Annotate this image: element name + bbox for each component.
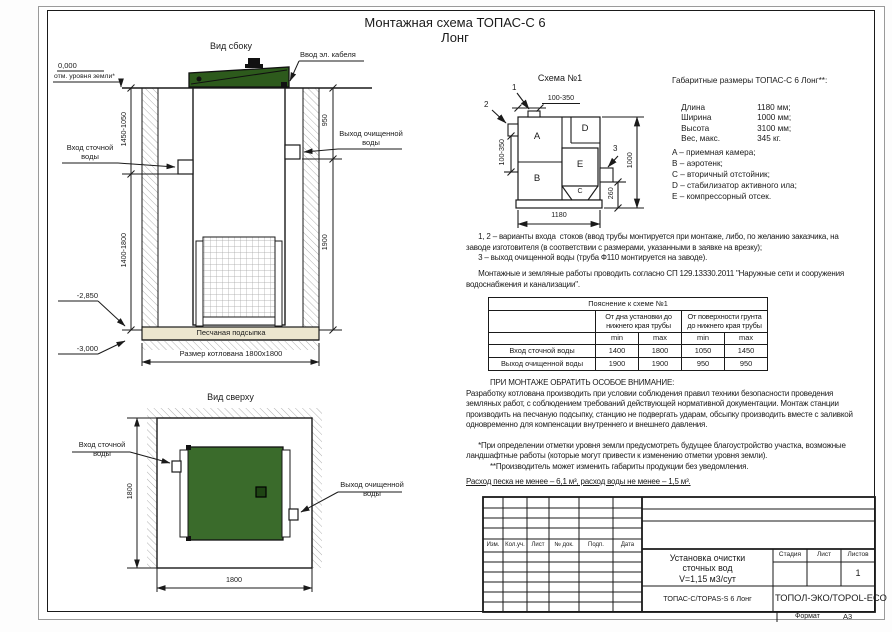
lid [189,58,289,87]
rev-col-koluch: Кол.уч. [503,542,527,549]
sheet-title-line2: Лонг [255,30,655,45]
table-caption: Пояснение к схеме №1 [489,298,768,311]
rev-col-podp: Подп. [579,542,613,549]
attention-footnote-1: *При определении отметки уровня земли пр… [466,441,880,462]
consumption-note: Расход песка не менее – 6,1 м³, расход в… [466,477,691,486]
table-cell: 1800 [639,345,682,358]
legend-item: D – стабилизатор активного ила; [672,181,797,191]
schema-dim-left: 100-350 [498,122,506,182]
attention-body: Разработку котлована производить при усл… [466,389,880,431]
rev-col-izm: Изм. [483,542,503,549]
top-view-label: Вид сверху [183,392,278,403]
top-inlet-label: Вход сточной воды [66,441,138,459]
compartment-a: A [527,131,547,142]
outlet-pipe-top [289,509,298,520]
gabarit-title: Габаритные размеры ТОПАС-С 6 Лонг**: [672,76,827,86]
table-cell: 1900 [596,358,639,371]
station-top [187,447,283,540]
model-designation: ТОПАС-С/TOPAS-S 6 Лонг [644,595,771,603]
schema-dim-top: 100-350 [542,94,580,104]
schema-label: Схема №1 [516,73,604,84]
top-view-linework [72,408,402,592]
table-cell: 950 [682,358,725,371]
company-name: ТОПОЛ-ЭКО/TOPOL-ECO [775,593,873,604]
schema-callout-1: 1 [512,83,516,92]
table-empty-cell [489,333,596,345]
table-cell: 950 [725,358,768,371]
table-cell: 1400 [596,345,639,358]
format-value: А3 [843,613,852,622]
sand-label: Песчаная подсыпка [156,329,306,338]
table-cell: 1900 [639,358,682,371]
dim-right-top: 950 [321,90,329,150]
top-dim-left: 1800 [126,461,134,521]
schema-callout-2: 2 [484,100,488,109]
stage-label: Стадия [773,551,807,559]
compartment-d: D [575,123,595,134]
legend-item: A – приемная камера; [672,148,756,158]
table-min-header: min [596,333,639,345]
side-outlet-label: Выход очищенной воды [336,130,406,148]
doc-title: Установка очистки сточных вод V=1,15 м3/… [644,553,771,584]
pit-dimension-label: Размер котлована 1800x1800 [136,350,326,359]
sheet-title-line1: Монтажная схема ТОПАС-С 6 [255,15,655,30]
table-row-name: Выход очищенной воды [489,358,596,371]
sheets-value: 1 [841,568,875,579]
ballast-grid [203,237,275,317]
attention-heading: ПРИ МОНТАЖЕ ОБРАТИТЬ ОСОБОЕ ВНИМАНИЕ: [490,378,674,387]
attention-footnote-2: **Производитель может изменить габариты … [490,462,890,471]
schema-dim-260: 260 [607,163,615,223]
gabarit-row-value: 345 кг. [757,134,781,143]
format-label: Формат [795,613,820,621]
table-row-name: Вход сточной воды [489,345,596,358]
table-cell: 1450 [725,345,768,358]
gabarit-row-label: Вес, макс. [681,134,757,144]
sheets-label: Листов [841,551,875,559]
inlet-pipe-top [172,461,181,472]
legend-item: C – вторичный отстойник; [672,170,770,180]
dim-left-bottom: 1400-1800 [120,220,128,280]
table-max-header: max [639,333,682,345]
schema-callout-3: 3 [613,144,617,153]
notes-paragraph-1: 1, 2 – варианты входа стоков (ввод трубы… [466,232,880,264]
schema-dim-1180: 1180 [529,211,589,219]
table-cell: 1050 [682,345,725,358]
level-zero-value: 0,000 [58,62,77,71]
explanation-table: Пояснение к схеме №1 От дна установки до… [488,297,768,371]
side-view-label: Вид сбоку [185,41,277,52]
table-min-header: min [682,333,725,345]
cable-entry-label: Ввод эл. кабеля [300,51,356,60]
top-outlet-label: Выход очищенной воды [334,481,410,499]
schema-linework [492,93,644,228]
table-max-header: max [725,333,768,345]
table-col-group-1: От дна установки до нижнего края трубы [596,311,682,333]
legend-item: B – аэротенк; [672,159,723,169]
rev-col-list: Лист [527,542,549,549]
legend-item: E – компрессорный отсек. [672,192,771,202]
cable-entry-point [281,82,287,88]
table-row: Выход очищенной воды 1900 1900 950 950 [489,358,768,371]
level-bottom-unit: -2,850 [54,292,98,301]
notes-paragraph-2: Монтажные и земляные работы проводить со… [466,269,880,290]
service-hatch [256,487,266,497]
compartment-e: E [570,159,590,170]
sheet-label: Лист [807,551,841,559]
rev-col-data: Дата [613,542,642,549]
dim-right-bottom: 1900 [321,212,329,272]
level-pit: -3,000 [54,345,98,354]
schema-dim-1000: 1000 [626,130,634,190]
top-dim-bottom: 1800 [204,576,264,584]
table-row: Вход сточной воды 1400 1800 1050 1450 [489,345,768,358]
compartment-c: C [571,188,589,196]
inlet-pipe-side [178,160,193,174]
side-inlet-label: Вход сточной воды [58,144,122,162]
compartment-b: B [527,173,547,184]
table-col-group-2: От поверхности грунта до нижнего края тр… [682,311,768,333]
table-corner-cell [489,311,596,333]
side-view-linework [53,58,402,366]
outlet-pipe-side [285,145,300,159]
level-zero-note: отм. уровня земли* [54,73,115,81]
dim-left-top: 1450-1050 [120,99,128,159]
rev-col-ndok: № док. [549,542,579,549]
drawing-sheet: Монтажная схема ТОПАС-С 6 Лонг Вид сбоку… [0,0,892,632]
